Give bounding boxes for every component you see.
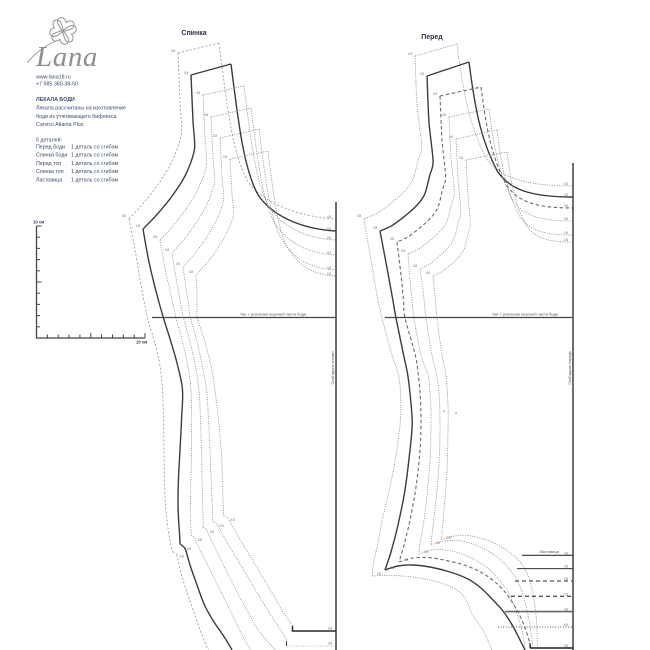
svg-text:www.lana18.ru: www.lana18.ru [36,75,71,81]
svg-text:+7 985 360-38-50: +7 985 360-38-50 [36,82,78,88]
svg-text:8: 8 [566,551,568,555]
svg-text:8: 8 [206,113,208,117]
svg-text:8: 8 [566,231,568,235]
svg-text:Ластовица: Ластовица [539,549,560,554]
svg-text:8: 8 [566,608,568,612]
svg-text:8: 8 [155,235,157,239]
svg-text:8: 8 [428,271,430,275]
svg-text:8: 8 [379,572,381,576]
svg-text:8: 8 [330,642,332,646]
svg-text:1 деталь со сгибом: 1 деталь со сгибом [71,153,119,159]
svg-text:8: 8 [329,236,331,240]
svg-text:Перед топ: Перед топ [36,161,61,167]
svg-text:8: 8 [200,538,202,542]
svg-text:1 деталь со сгибом: 1 деталь со сгибом [71,145,119,151]
svg-text:8: 8 [566,623,568,627]
svg-text:8: 8 [566,565,568,569]
svg-text:8: 8 [138,224,140,228]
svg-text:10 см: 10 см [136,340,147,345]
svg-text:Сгиб вдоль переда: Сгиб вдоль переда [568,350,572,384]
svg-text:8: 8 [566,217,568,221]
svg-text:Carvico Atlanta Plus: Carvico Atlanta Plus [36,122,84,128]
svg-text:8: 8 [225,155,227,159]
svg-text:5 деталей:: 5 деталей: [36,137,62,144]
svg-text:10 см: 10 см [33,220,44,225]
svg-text:8: 8 [410,52,412,56]
svg-text:8: 8 [435,92,437,96]
svg-text:8: 8 [566,204,568,208]
svg-text:8: 8 [329,227,331,231]
svg-text:8: 8 [359,214,361,218]
svg-text:8: 8 [186,71,188,75]
svg-text:8: 8 [566,182,568,186]
svg-text:Ластовица: Ластовица [36,177,62,183]
svg-text:Lana: Lana [35,41,98,73]
svg-text:8: 8 [375,226,377,230]
svg-text:8: 8 [233,518,235,522]
svg-text:8: 8 [329,272,331,276]
svg-text:ЛЕКАЛА БОДИ: ЛЕКАЛА БОДИ [36,97,75,103]
svg-text:8: 8 [330,627,332,631]
svg-text:8: 8 [178,262,180,266]
svg-text:8: 8 [566,644,568,648]
svg-text:8: 8 [173,49,175,53]
svg-text:8: 8 [191,270,193,274]
svg-text:8: 8 [566,238,568,242]
svg-text:8: 8 [444,113,446,117]
svg-text:Перед: Перед [421,34,443,41]
svg-text:8: 8 [222,524,224,528]
svg-text:Перед боди: Перед боди [36,145,65,151]
svg-text:8: 8 [438,541,440,545]
svg-text:8: 8 [329,251,331,255]
svg-text:8: 8 [449,536,451,540]
svg-text:8: 8 [392,566,394,570]
svg-text:8: 8 [566,577,568,581]
svg-text:8: 8 [167,248,169,252]
svg-text:Лекала рассчитаны на изготовле: Лекала рассчитаны на изготовление [36,105,126,111]
svg-text:8: 8 [182,555,184,559]
svg-text:8: 8 [212,530,214,534]
svg-text:8: 8 [329,215,331,219]
svg-text:Сгиб вдоль спинки: Сгиб вдоль спинки [331,352,335,385]
svg-text:1 деталь со сгибом: 1 деталь со сгибом [71,161,119,167]
svg-text:8: 8 [329,266,331,270]
svg-text:8: 8 [215,134,217,138]
svg-text:8: 8 [451,135,453,139]
svg-text:8: 8 [422,72,424,76]
svg-text:8: 8 [426,550,428,554]
svg-text:Топ + усиление верхней части б: Топ + усиление верхней части боди [240,312,306,317]
svg-text:Спинка: Спинка [181,30,206,37]
svg-text:8: 8 [124,214,126,218]
svg-text:Спинка топ: Спинка топ [36,169,64,175]
svg-text:8: 8 [566,193,568,197]
svg-text:8: 8 [566,592,568,596]
svg-text:8: 8 [198,91,200,95]
svg-text:8: 8 [403,249,405,253]
svg-text:8: 8 [392,237,394,241]
svg-text:8: 8 [189,547,191,551]
svg-text:Спинка боди: Спинка боди [36,153,67,159]
svg-text:боди из утягивающего бифлекса: боди из утягивающего бифлекса [36,114,117,120]
svg-text:8: 8 [461,156,463,160]
svg-text:1 деталь со сгибом: 1 деталь со сгибом [71,169,119,175]
svg-text:8: 8 [406,558,408,562]
svg-text:8: 8 [415,264,417,268]
svg-text:1 деталь со сгибом: 1 деталь со сгибом [71,177,119,183]
svg-text:Топ + усиление верхней части б: Топ + усиление верхней части боди [492,312,558,317]
